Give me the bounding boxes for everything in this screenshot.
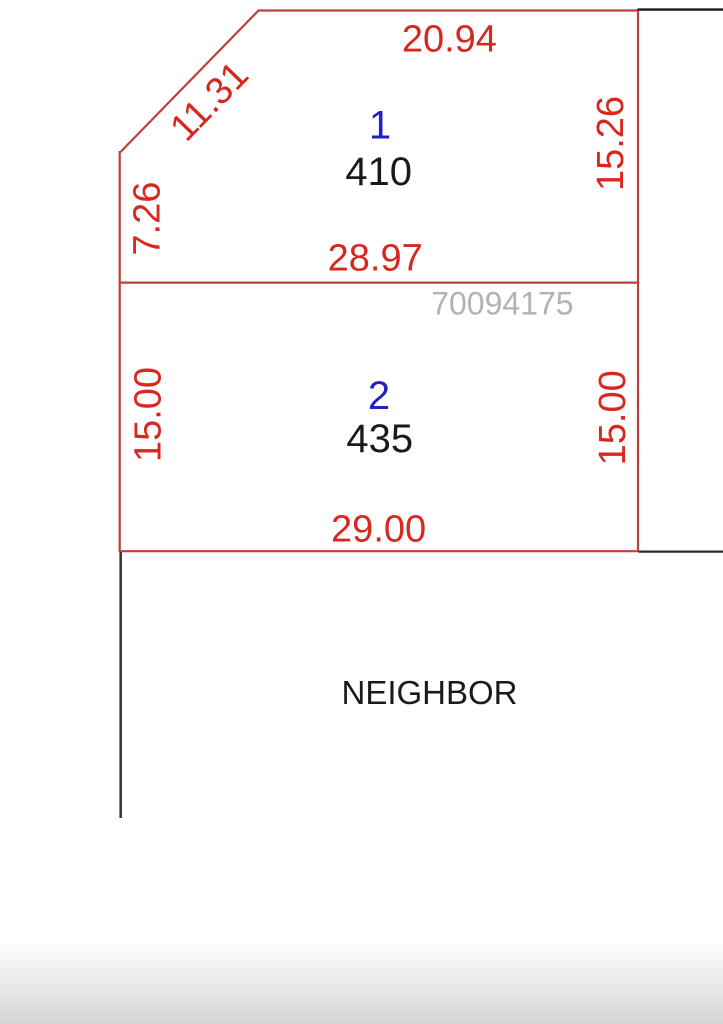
svg-text:15.00: 15.00 [592,370,634,465]
svg-text:435: 435 [346,417,413,461]
svg-text:15.00: 15.00 [128,367,170,462]
svg-text:28.97: 28.97 [328,237,423,279]
svg-text:29.00: 29.00 [331,509,426,551]
svg-text:NEIGHBOR: NEIGHBOR [341,674,517,711]
svg-text:1: 1 [369,103,391,147]
svg-text:410: 410 [345,150,412,194]
svg-text:70094175: 70094175 [431,286,573,322]
svg-text:20.94: 20.94 [402,19,497,61]
svg-text:2: 2 [368,374,390,418]
svg-text:15.26: 15.26 [590,96,632,191]
svg-text:7.26: 7.26 [127,182,169,256]
